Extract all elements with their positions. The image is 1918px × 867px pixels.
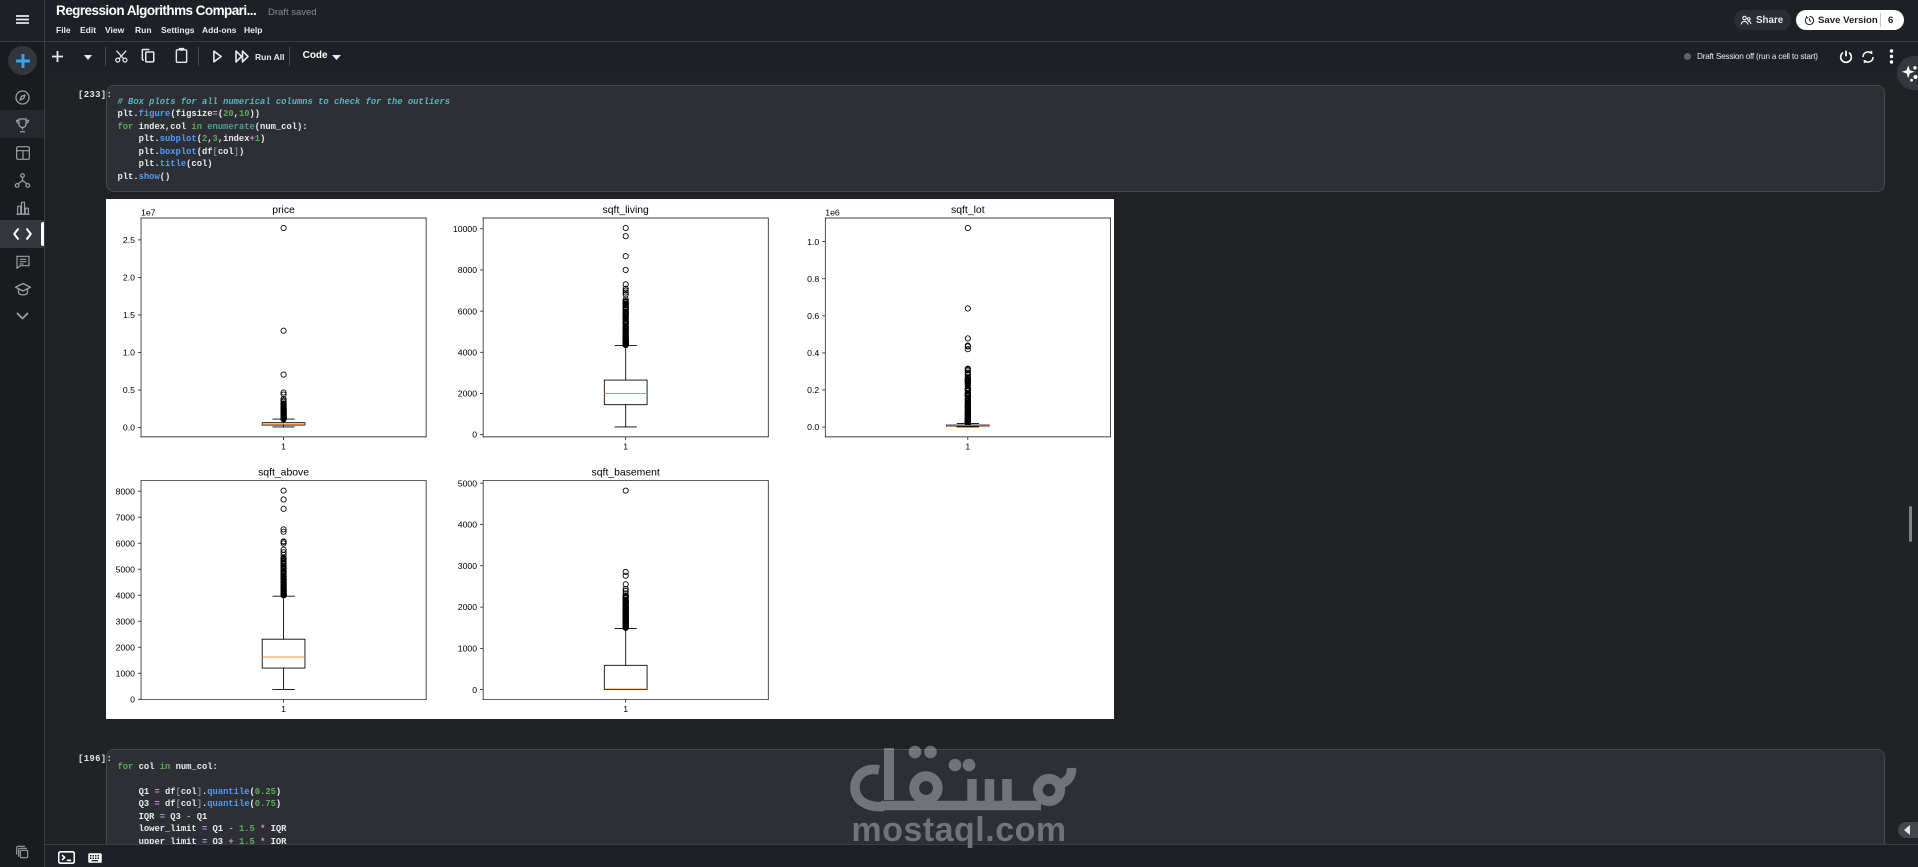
svg-text:3000: 3000 [458,561,477,571]
svg-text:6000: 6000 [116,538,135,548]
svg-text:8000: 8000 [116,486,135,496]
svg-text:sqft_above: sqft_above [258,467,309,478]
svg-text:7000: 7000 [116,512,135,522]
svg-text:1: 1 [623,704,628,714]
svg-text:2000: 2000 [116,642,135,652]
svg-text:2000: 2000 [458,389,477,399]
svg-text:1e7: 1e7 [141,207,156,217]
svg-text:4000: 4000 [116,590,135,600]
svg-text:1: 1 [281,704,286,714]
svg-text:1000: 1000 [458,643,477,653]
svg-text:4000: 4000 [458,347,477,357]
svg-text:price: price [272,205,295,216]
svg-text:2.5: 2.5 [123,235,135,245]
svg-text:5000: 5000 [116,564,135,574]
svg-text:5000: 5000 [458,478,477,488]
svg-text:0.8: 0.8 [807,274,819,284]
svg-text:0.0: 0.0 [123,423,135,433]
svg-text:sqft_basement: sqft_basement [592,467,660,478]
svg-text:8000: 8000 [458,265,477,275]
svg-text:sqft_lot: sqft_lot [951,205,985,216]
svg-text:sqft_living: sqft_living [603,205,649,216]
svg-text:1e6: 1e6 [825,207,840,217]
svg-text:0: 0 [130,694,135,704]
svg-text:0: 0 [472,430,477,440]
svg-text:0.5: 0.5 [123,385,135,395]
svg-text:0: 0 [472,685,477,695]
svg-text:0.6: 0.6 [807,311,819,321]
svg-text:1.0: 1.0 [807,237,819,247]
svg-text:6000: 6000 [458,306,477,316]
svg-text:1: 1 [965,441,970,451]
svg-text:3000: 3000 [116,616,135,626]
svg-text:1: 1 [623,441,628,451]
svg-text:0.4: 0.4 [807,348,819,358]
svg-text:0.0: 0.0 [807,422,819,432]
svg-text:2.0: 2.0 [123,273,135,283]
svg-text:1.5: 1.5 [123,310,135,320]
svg-text:10000: 10000 [453,224,477,234]
svg-text:1000: 1000 [116,668,135,678]
svg-text:2000: 2000 [458,602,477,612]
svg-text:4000: 4000 [458,520,477,530]
svg-text:1: 1 [281,441,286,451]
svg-text:1.0: 1.0 [123,348,135,358]
svg-text:0.2: 0.2 [807,385,819,395]
